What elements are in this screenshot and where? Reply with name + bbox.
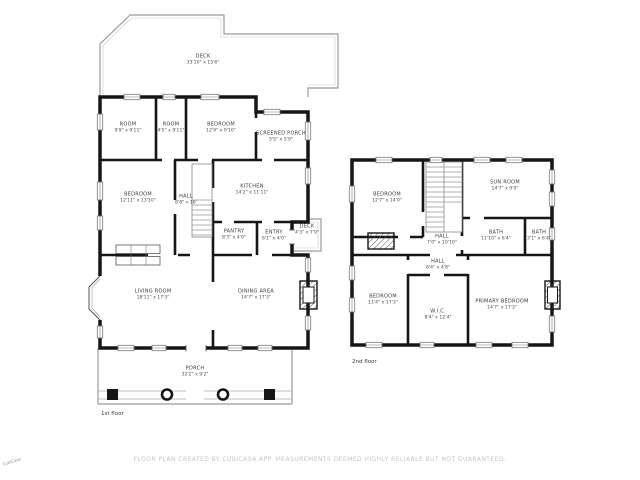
floor1-caption: 1st floor [101, 411, 124, 417]
floorplan-2nd-floor [349, 157, 560, 347]
floorplan-1st-floor [89, 15, 338, 404]
fireplace-2f [545, 281, 560, 309]
porch-outline-1f [98, 348, 292, 404]
floor2-caption: 2nd floor [352, 359, 377, 365]
staircase-2f [426, 162, 462, 232]
disclaimer-text: FLOOR PLAN CREATED BY CUBICASA APP. MEAS… [0, 456, 640, 463]
bay-window-1f [89, 276, 103, 320]
small-deck-outline-1f [292, 219, 321, 251]
staircase-1f [192, 164, 212, 237]
stair-hatch-2f [368, 233, 394, 249]
deck-outline-1f [100, 15, 338, 97]
floor-plan-page: DECK 33'10" x 15'6" ROOM 9'9" x 9'11" RO… [0, 0, 640, 480]
floor-plan-drawing [0, 0, 640, 480]
fireplace-1f [300, 281, 317, 309]
